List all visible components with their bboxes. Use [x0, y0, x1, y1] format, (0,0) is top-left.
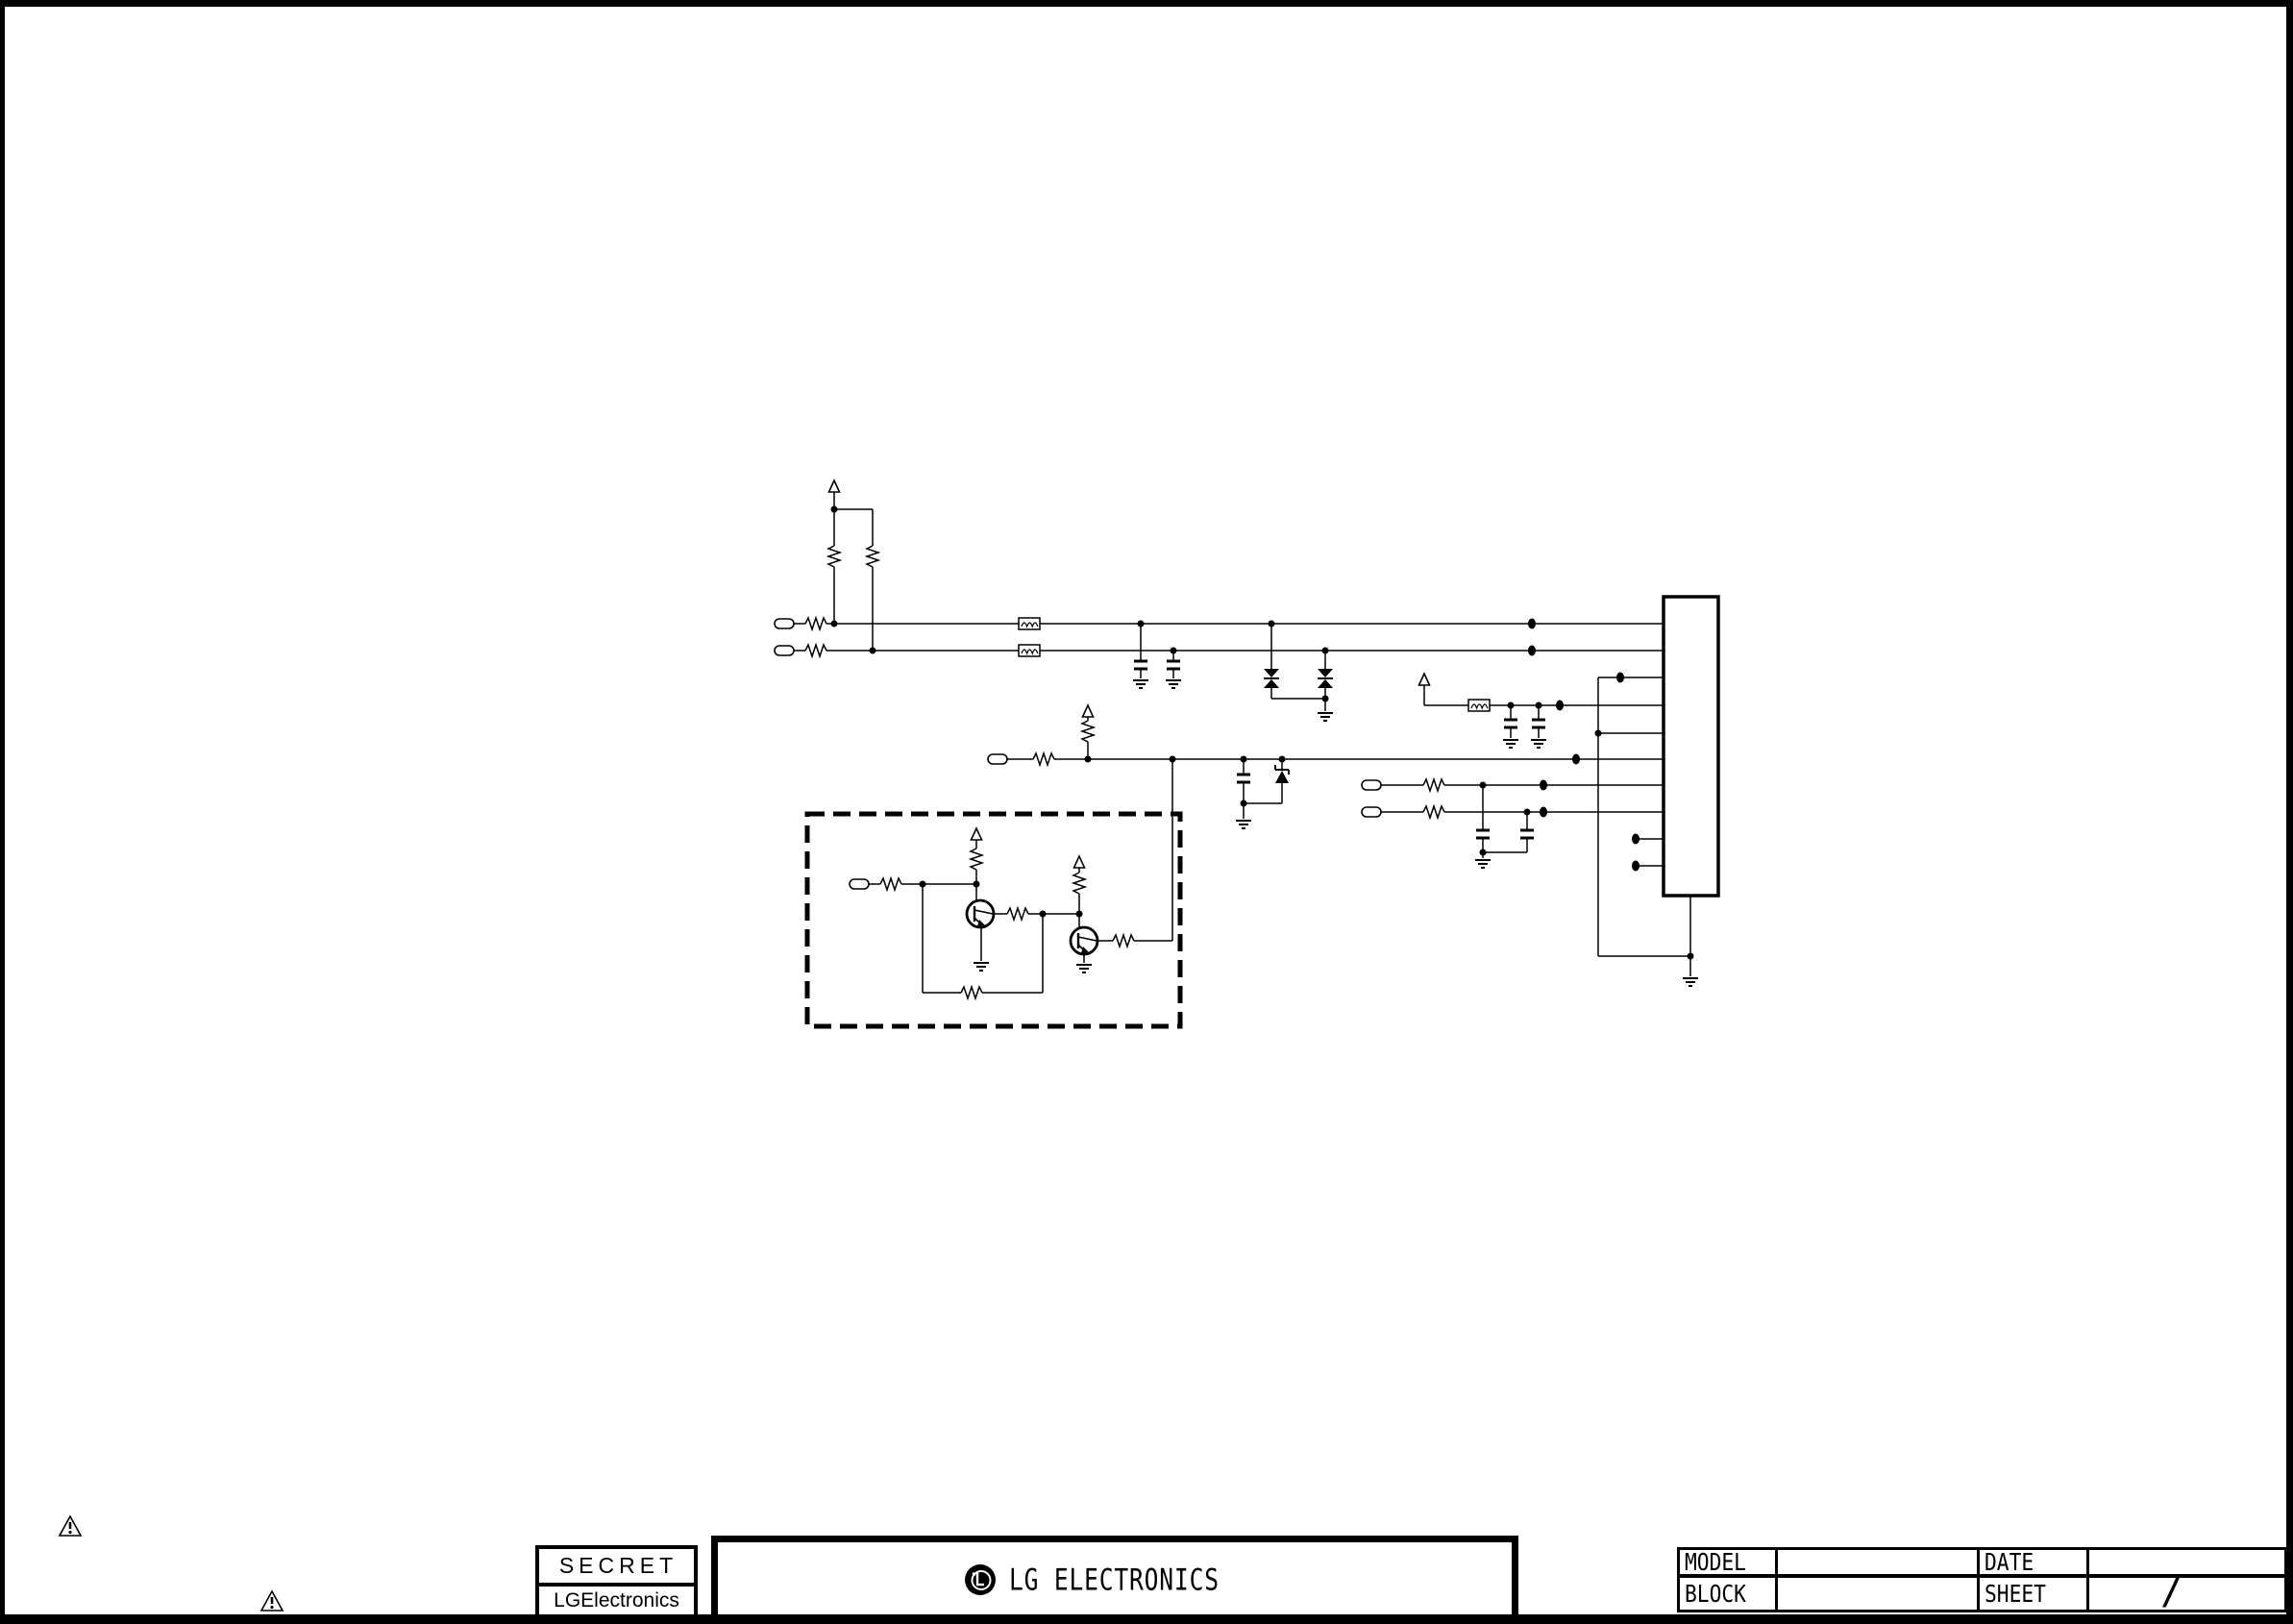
date-label-cell: DATE [1980, 1550, 2089, 1578]
junction-dots [831, 506, 1694, 960]
model-value-cell [1778, 1550, 1980, 1578]
resistor [1073, 873, 1085, 894]
capacitor [1237, 775, 1250, 782]
title-block-table: MODEL DATE BLOCK SHEET / [1677, 1547, 2287, 1612]
resistor [1113, 935, 1134, 947]
ground-icon [1236, 821, 1251, 828]
npn-transistor-q1 [967, 900, 994, 927]
company-name: LG ELECTRONICS [1009, 1562, 1220, 1598]
power-arrow-icon [829, 480, 840, 492]
ground-icon [1503, 740, 1518, 748]
tvs-diode [1264, 669, 1279, 688]
capacitor [1476, 830, 1490, 838]
connector-port [850, 879, 869, 889]
capacitor [1520, 830, 1534, 838]
resistor [971, 849, 982, 870]
lg-logo-icon [964, 1563, 997, 1596]
stamp-company-label: LGElectronics [539, 1587, 694, 1614]
power-arrow-icon [972, 828, 982, 840]
resistor [805, 618, 826, 629]
resistors [805, 546, 1444, 998]
block-label-cell: BLOCK [1680, 1578, 1778, 1610]
ferrite-bead [1019, 645, 1040, 656]
ground-icon [1318, 713, 1333, 721]
ic-block [1664, 597, 1718, 896]
connector-port [1362, 807, 1381, 817]
resistor [1082, 721, 1094, 742]
resistor [1007, 908, 1028, 920]
schematic-page: SECRET LGElectronics LG ELECTRONICS MODE… [0, 0, 2293, 1624]
sheet-value-cell: / [2089, 1578, 2284, 1610]
ground-icon [1133, 680, 1148, 688]
tvs-diode [1318, 669, 1333, 688]
dashed-detail-box [807, 814, 1180, 1026]
resistor [1033, 753, 1054, 765]
tvs-diodes [1264, 669, 1333, 688]
circuit-schematic [0, 0, 2293, 1624]
wire-segments [794, 492, 1690, 993]
resistor [867, 546, 878, 567]
block-label: BLOCK [1685, 1580, 1746, 1608]
resistor [1423, 779, 1444, 791]
capacitor [1532, 720, 1545, 727]
ferrite-bead [1468, 700, 1490, 711]
block-value-cell [1778, 1578, 1980, 1610]
connector-port [775, 619, 794, 628]
ground-symbols [974, 680, 1698, 986]
sheet-slash: / [2160, 1569, 2183, 1613]
connector-port [988, 754, 1007, 764]
resistor [1423, 806, 1444, 818]
net-dots [1528, 619, 1640, 872]
connector-port [1362, 780, 1381, 790]
model-label-cell: MODEL [1680, 1550, 1778, 1578]
connector-ports [775, 619, 1381, 889]
resistor [805, 645, 826, 656]
ground-icon [1166, 680, 1181, 688]
capacitor [1167, 661, 1180, 669]
ferrite-beads [1019, 618, 1490, 711]
ground-icon [1076, 965, 1092, 972]
ground-icon [1531, 740, 1546, 748]
model-label: MODEL [1685, 1548, 1746, 1576]
date-value-cell [2089, 1550, 2284, 1578]
power-arrow-icon [1083, 705, 1094, 717]
power-arrows [829, 480, 1430, 868]
ferrite-bead [1019, 618, 1040, 629]
ground-icon [1683, 978, 1698, 986]
company-banner: LG ELECTRONICS [711, 1536, 1518, 1624]
capacitor [1504, 720, 1517, 727]
sheet-label-cell: SHEET [1980, 1578, 2089, 1610]
power-arrow-icon [1074, 856, 1085, 868]
security-stamp: SECRET LGElectronics [535, 1545, 698, 1618]
date-label: DATE [1985, 1548, 2034, 1576]
resistor [828, 546, 840, 567]
power-arrow-icon [1419, 674, 1430, 685]
connector-port [775, 646, 794, 655]
resistor [961, 987, 982, 998]
capacitor [1134, 661, 1147, 669]
npn-transistor-q2 [1071, 927, 1097, 954]
resistor [880, 878, 901, 890]
ground-icon [1475, 860, 1491, 868]
classification-label: SECRET [539, 1549, 694, 1587]
warning-triangle-icon [259, 1589, 284, 1612]
sheet-label: SHEET [1985, 1580, 2046, 1608]
ground-icon [974, 963, 989, 971]
warning-triangle-icon [58, 1514, 83, 1538]
